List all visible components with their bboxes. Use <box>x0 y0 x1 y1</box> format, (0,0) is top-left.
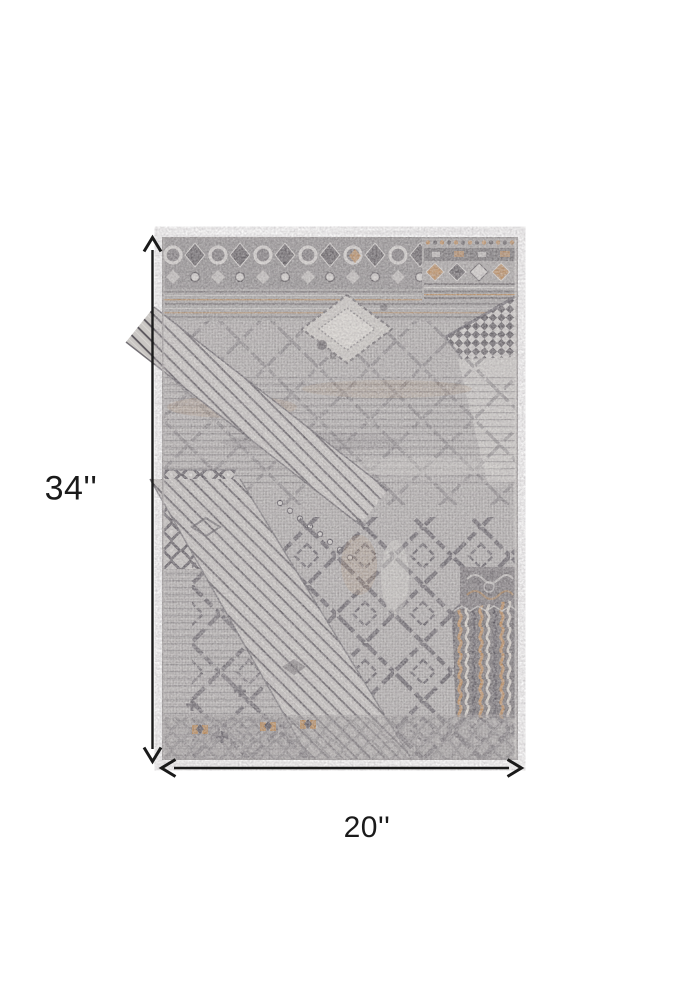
rug-image <box>126 237 518 760</box>
width-dimension-label: 20'' <box>344 811 391 845</box>
height-dimension-label: 34'' <box>45 470 98 509</box>
product-dimension-diagram: 34'' 20'' <box>0 0 682 1000</box>
width-dimension-arrow <box>162 760 522 777</box>
rug-dimension-scene <box>0 0 682 1000</box>
